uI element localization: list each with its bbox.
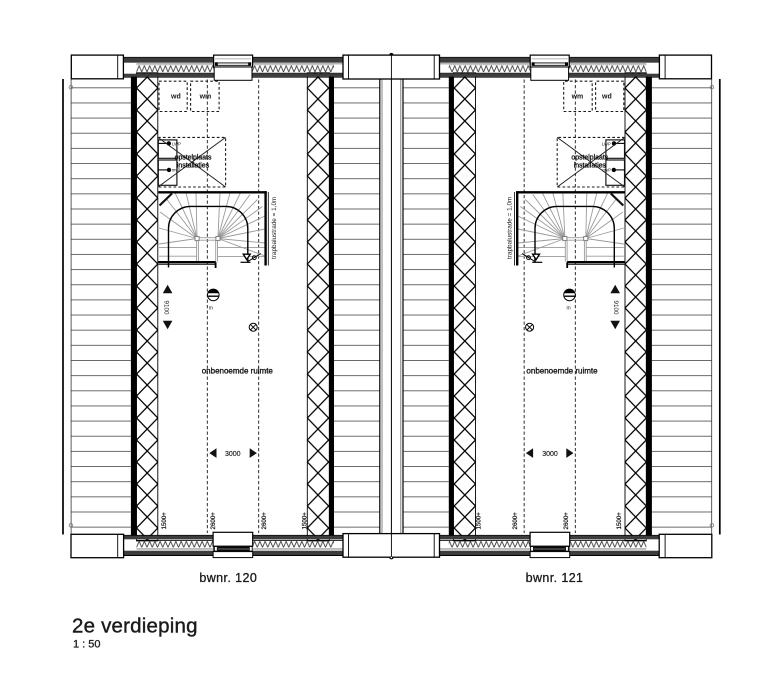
svg-text:3000: 3000 <box>225 451 241 458</box>
svg-text:3000: 3000 <box>542 451 558 458</box>
svg-text:m: m <box>567 306 571 312</box>
svg-text:trapbalustrade = 1,0m: trapbalustrade = 1,0m <box>271 197 278 259</box>
svg-text:wm: wm <box>199 93 212 100</box>
svg-text:mvP: mvP <box>172 167 181 172</box>
svg-text:bwnr. 121: bwnr. 121 <box>526 571 584 585</box>
svg-text:2e verdieping: 2e verdieping <box>72 615 198 638</box>
svg-text:1500+: 1500+ <box>161 512 168 530</box>
svg-text:LWP: LWP <box>602 141 611 146</box>
svg-text:wd: wd <box>170 93 181 100</box>
svg-text:onbenoemde ruimte: onbenoemde ruimte <box>202 367 274 376</box>
svg-text:2600+: 2600+ <box>261 512 268 530</box>
svg-text:9100: 9100 <box>612 301 619 316</box>
svg-text:wd: wd <box>601 93 612 100</box>
svg-text:onbenoemde ruimte: onbenoemde ruimte <box>526 367 598 376</box>
svg-text:m: m <box>209 306 213 312</box>
svg-text:2600+: 2600+ <box>512 512 519 530</box>
svg-text:bwnr. 120: bwnr. 120 <box>199 571 257 585</box>
svg-text:2600+: 2600+ <box>210 512 217 530</box>
svg-text:9100: 9100 <box>162 301 169 316</box>
svg-text:installaties: installaties <box>177 162 210 169</box>
svg-text:opstelplaats: opstelplaats <box>175 154 212 161</box>
svg-text:mvP: mvP <box>602 167 611 172</box>
svg-text:trapbalustrade = 1,0m: trapbalustrade = 1,0m <box>507 197 514 259</box>
svg-text:wm: wm <box>571 93 584 100</box>
svg-text:1500+: 1500+ <box>475 512 482 530</box>
svg-text:1 : 50: 1 : 50 <box>73 639 101 651</box>
svg-text:opstelplaats: opstelplaats <box>571 154 608 161</box>
svg-text:LWP: LWP <box>172 141 181 146</box>
svg-text:1500+: 1500+ <box>302 512 309 530</box>
svg-text:2600+: 2600+ <box>563 512 570 530</box>
svg-text:1500+: 1500+ <box>616 512 623 530</box>
